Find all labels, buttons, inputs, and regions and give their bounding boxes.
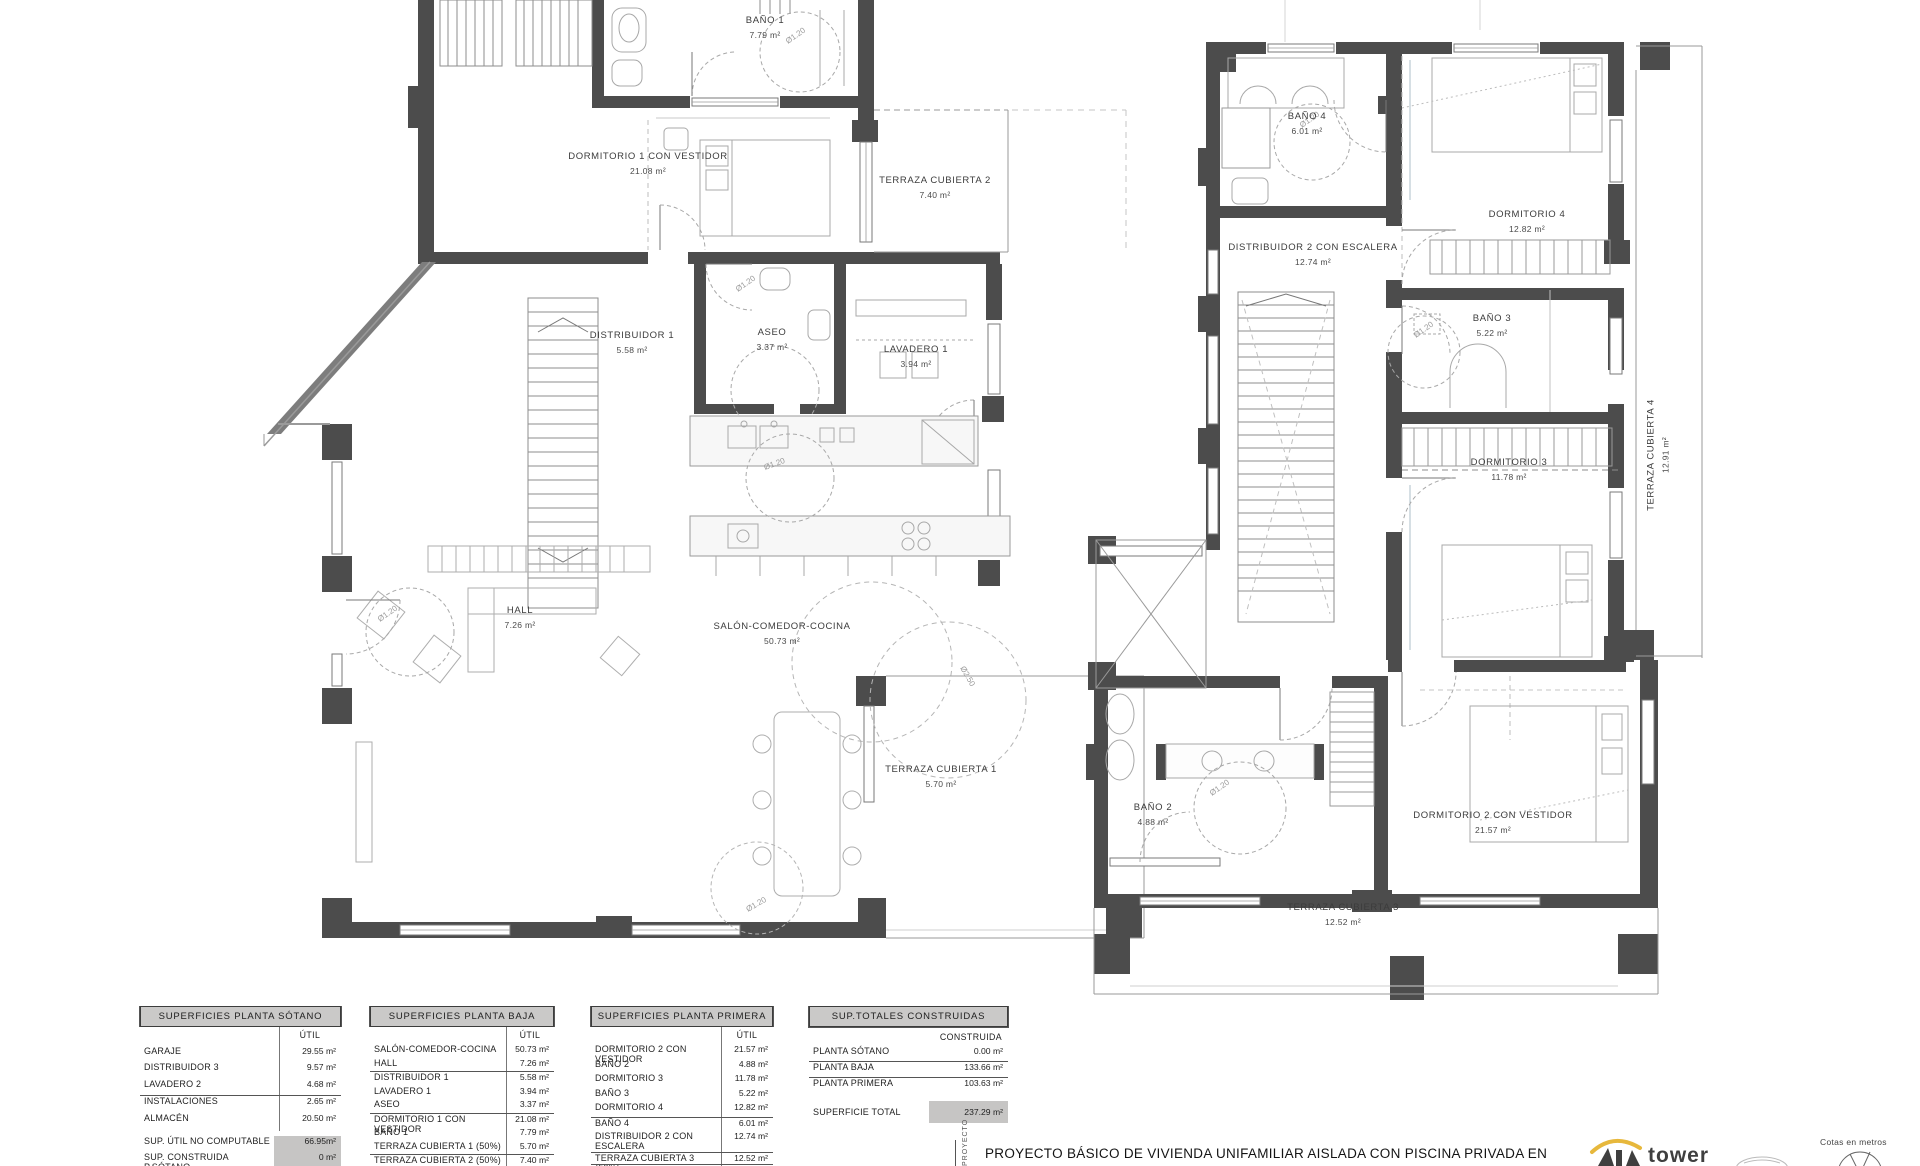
room-label-aseo: ASEO3.37 m² [757, 328, 788, 353]
stairs-main [528, 298, 598, 608]
cotas-en-metros-label: Cotas en metros [1820, 1137, 1887, 1147]
room-label-distribuidor2: DISTRIBUIDOR 2 CON ESCALERA12.74 m² [1228, 243, 1397, 268]
closet2-hatch [1330, 692, 1374, 806]
room-label-dormitorio1: DORMITORIO 1 CON VESTIDOR21.08 m² [568, 152, 727, 177]
turning-circle-label: Ø1.20 [1208, 777, 1231, 797]
tower-logo: tower [1588, 1134, 1768, 1166]
void-block [1096, 540, 1206, 688]
table-planta-primera: SUPERFICIES PLANTA PRIMERA ÚTIL DORMITOR… [590, 1006, 774, 1027]
diagonal-wall [264, 262, 436, 446]
floorplan-sheet: { "plans": { "baja": { "rooms": { "bano1… [0, 0, 1920, 1166]
project-title: PROYECTO BÁSICO DE VIVIENDA UNIFAMILIAR … [985, 1146, 1547, 1161]
table-body: DORMITORIO 2 CON VESTIDOR21.57 m² BAÑO 2… [591, 1044, 773, 1166]
room-label-terraza1: TERRAZA CUBIERTA 15.70 m² [885, 765, 997, 790]
room-label-bano2: BAÑO 24.88 m² [1134, 803, 1172, 828]
bathroom1-fixtures [612, 8, 844, 96]
table-title: SUPERFICIES PLANTA PRIMERA [591, 1006, 773, 1027]
bed1 [648, 118, 830, 250]
room-label-hall: HALL7.26 m² [505, 606, 536, 631]
bathroom2-fixtures [1106, 688, 1332, 862]
room-label-dormitorio2: DORMITORIO 2 CON VESTIDOR21.57 m² [1413, 811, 1572, 836]
table-col-header: ÚTIL [721, 1030, 773, 1040]
terraza4-outline [1636, 46, 1702, 658]
room-label-dormitorio3: DORMITORIO 311.78 m² [1471, 458, 1548, 483]
room-label-distribuidor1: DISTRIBUIDOR 15.58 m² [590, 331, 674, 356]
table-body: SALÓN-COMEDOR-COCINA50.73 m² HALL7.26 m²… [370, 1044, 554, 1166]
turning-circle-label: Ø1.20 [1412, 319, 1435, 339]
turning-circle-label: Ø1.20 [745, 895, 769, 914]
living-furniture [356, 546, 861, 896]
titleblock-vertical-label: PROYECTO [962, 1119, 969, 1166]
table-title: SUPERFICIES PLANTA SÓTANO [140, 1006, 341, 1027]
titleblock-divider [955, 1140, 956, 1166]
turning-circle-label: Ø1.20 [784, 25, 807, 45]
room-label-terraza3: TERRAZA CUBIERTA 312.52 m² [1287, 903, 1399, 928]
table-title: SUPERFICIES PLANTA BAJA [370, 1006, 554, 1027]
room-label-bano3: BAÑO 35.22 m² [1473, 314, 1511, 339]
tower-logo-text: tower [1648, 1144, 1709, 1166]
table-planta-baja: SUPERFICIES PLANTA BAJA ÚTIL SALÓN-COMED… [369, 1006, 555, 1027]
bed4 [1402, 56, 1602, 284]
north-arrow-icon [1830, 1150, 1900, 1166]
hall-door [346, 588, 454, 676]
planta-primera-drawing: Ø1.20 Ø1.20 [1080, 0, 1740, 1010]
room-label-bano1: BAÑO 17.79 m² [746, 16, 784, 41]
table-col-header: ÚTIL [279, 1030, 341, 1040]
bathroom3-fixtures [1388, 290, 1550, 412]
tower-logo-icon [1588, 1134, 1644, 1166]
table-body: PLANTA SÓTANO0.00 m² PLANTA BAJA133.66 m… [809, 1046, 1008, 1123]
table-body: GARAJE29.55 m² DISTRIBUIDOR 39.57 m² LAV… [140, 1046, 341, 1129]
room-label-terraza2: TERRAZA CUBIERTA 27.40 m² [879, 176, 991, 201]
table-col-header: CONSTRUIDA [934, 1032, 1008, 1042]
room-label-lavadero1: LAVADERO 13.94 m² [884, 345, 948, 370]
table-footer: SUP. ÚTIL NO COMPUTABLE66.95m² SUP. CONS… [140, 1136, 341, 1166]
kitchen-counters [690, 416, 1010, 556]
room-label-terraza4: TERRAZA CUBIERTA 412.91 m² [1647, 399, 1672, 511]
stairs-top [440, 0, 790, 66]
table-col-header: ÚTIL [506, 1030, 554, 1040]
walls-planta-primera [1086, 42, 1670, 1000]
table-title: SUP.TOTALES CONSTRUIDAS [809, 1006, 1008, 1027]
room-label-dormitorio4: DORMITORIO 412.82 m² [1489, 210, 1566, 235]
table-planta-sotano: SUPERFICIES PLANTA SÓTANO ÚTIL GARAJE29.… [139, 1006, 342, 1027]
turning-circle-label: Ø1.20 [734, 273, 757, 293]
table-totales: SUP.TOTALES CONSTRUIDAS CONSTRUIDA PLANT… [808, 1006, 1009, 1028]
room-label-salon: SALÓN-COMEDOR-COCINA50.73 m² [713, 622, 850, 647]
closet4-hatch [1430, 240, 1610, 274]
stairs-distribuidor2 [1238, 292, 1334, 622]
room-label-bano4: BAÑO 46.01 m² [1288, 112, 1326, 137]
bed3 [1402, 470, 1620, 657]
